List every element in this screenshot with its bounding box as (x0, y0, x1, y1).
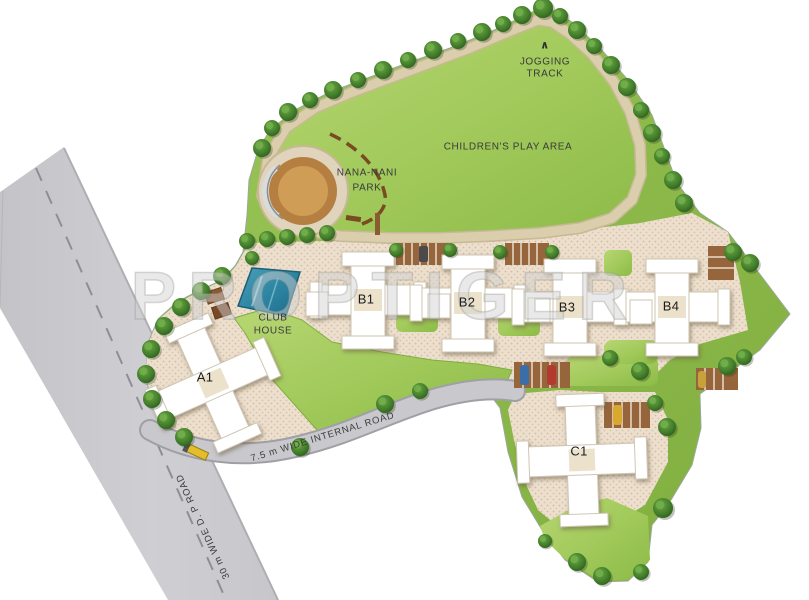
parked-car-red (547, 365, 556, 385)
parked-car-yellow (613, 405, 622, 425)
proptiger-watermark: PROPTIGER (131, 257, 640, 335)
site-plan-page: PROPTIGER ∧ JOGGING TRACK CHILDREN'S PLA… (0, 0, 809, 600)
parking-row-5 (604, 402, 650, 428)
parked-car-blue (520, 365, 529, 385)
parking-row-4 (514, 362, 570, 388)
parked-car-yellow-2 (698, 371, 706, 388)
